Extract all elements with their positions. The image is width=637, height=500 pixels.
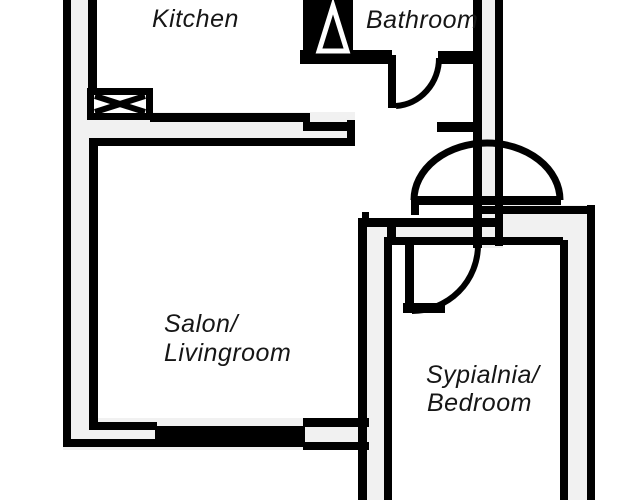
kitchen-label: Kitchen (152, 5, 239, 33)
entrance-threshold-line (411, 196, 561, 205)
floor-plan: Kitchen Bathroom Salon/ Livingroom Sypia… (0, 0, 637, 500)
bedroom-right-wall-outer-line (587, 205, 595, 500)
bedroom-door-leaf (405, 240, 414, 308)
bottom-wall-inner-edge (89, 422, 157, 430)
wall-left-outer-line (63, 0, 71, 447)
bathroom-bottom-wall-stub (438, 51, 478, 64)
bedroom-label-line1: Sypialnia/ (426, 361, 542, 389)
bedroom-door-arc (412, 245, 478, 311)
livingroom-label-line2: Livingroom (164, 339, 291, 367)
bedroom-right-wall-inner-line (560, 240, 568, 500)
bedroom-label-line2: Bedroom (427, 389, 532, 417)
bottom-wall-outer-edge-right (303, 442, 369, 450)
divider-left-line (358, 218, 367, 500)
floor-plan-canvas: Kitchen Bathroom Salon/ Livingroom Sypia… (0, 0, 637, 500)
wall-lines (63, 0, 595, 500)
divider-right-line (384, 237, 392, 500)
bottom-wall-top-edge-right (303, 418, 369, 427)
shower-triangle-symbol (313, 0, 353, 57)
bathroom-door-leaf (388, 55, 396, 108)
kitchen-wall-end-cap (347, 120, 355, 146)
kitchen-wall-top-edge (150, 113, 310, 122)
bathroom-door-arc (396, 58, 439, 106)
wall-left-inner-line-living (89, 138, 98, 430)
crossed-box-shaft-symbol (87, 88, 153, 120)
entrance-wall-stub (437, 122, 477, 132)
bathroom-label: Bathroom (366, 6, 478, 34)
wall-left-inner-line-kitchen (88, 0, 97, 96)
bedroom-top-wall-top-edge (478, 206, 595, 214)
hall-living-divider-line (362, 218, 503, 227)
kitchen-wall-bottom-edge (89, 138, 355, 146)
window-band (155, 426, 305, 444)
livingroom-label-line1: Salon/ (164, 310, 240, 338)
